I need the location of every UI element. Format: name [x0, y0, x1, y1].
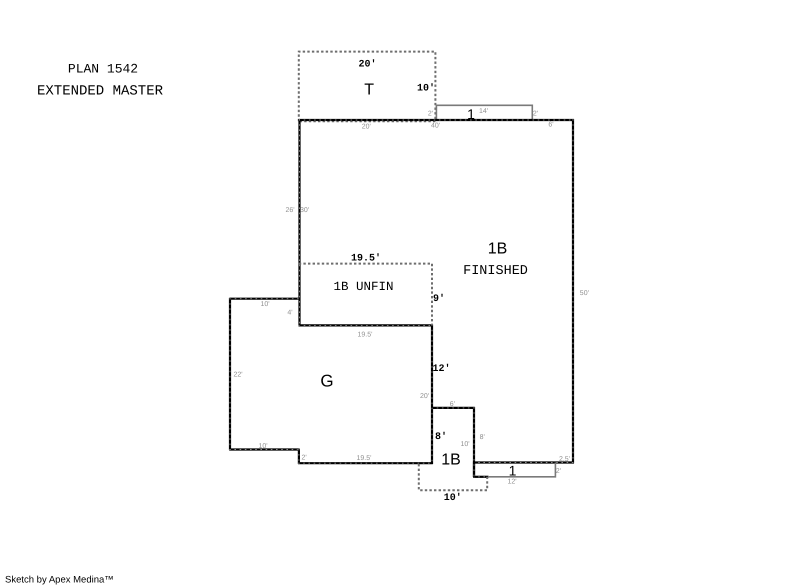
- svg-text:19.5': 19.5': [351, 253, 381, 265]
- svg-text:1: 1: [509, 462, 517, 478]
- svg-text:2': 2': [302, 455, 307, 462]
- svg-text:G: G: [320, 372, 333, 391]
- svg-text:40': 40': [431, 123, 440, 130]
- svg-text:30': 30': [300, 207, 309, 214]
- svg-text:6': 6': [450, 401, 455, 408]
- svg-text:10': 10': [460, 441, 469, 448]
- svg-text:4': 4': [287, 310, 292, 317]
- svg-text:20': 20': [358, 59, 376, 71]
- svg-text:10': 10': [444, 492, 462, 504]
- svg-text:2': 2': [556, 468, 561, 475]
- svg-text:PLAN 1542: PLAN 1542: [68, 62, 138, 77]
- svg-text:26': 26': [285, 207, 294, 214]
- svg-text:8': 8': [480, 434, 485, 441]
- svg-text:Sketch by Apex Medina™: Sketch by Apex Medina™: [5, 575, 114, 586]
- svg-text:12': 12': [507, 478, 516, 485]
- svg-text:12': 12': [433, 363, 451, 375]
- svg-text:19.5': 19.5': [358, 332, 373, 339]
- svg-text:1B: 1B: [441, 452, 461, 469]
- svg-text:FINISHED: FINISHED: [463, 264, 528, 279]
- svg-text:1B UNFIN: 1B UNFIN: [333, 280, 393, 294]
- svg-text:22': 22': [234, 372, 243, 379]
- svg-text:10': 10': [417, 83, 435, 95]
- svg-text:9': 9': [433, 293, 445, 305]
- svg-text:20': 20': [362, 124, 371, 131]
- svg-text:2': 2': [533, 111, 538, 118]
- svg-text:20': 20': [420, 393, 429, 400]
- svg-text:2': 2': [428, 111, 433, 118]
- svg-text:50': 50': [580, 290, 589, 297]
- svg-text:19.5': 19.5': [357, 455, 372, 462]
- svg-text:8': 8': [435, 431, 447, 443]
- svg-text:10': 10': [260, 301, 269, 308]
- svg-text:6': 6': [548, 122, 553, 129]
- svg-text:14': 14': [479, 108, 488, 115]
- svg-text:EXTENDED MASTER: EXTENDED MASTER: [37, 84, 164, 100]
- svg-text:1B: 1B: [488, 241, 508, 258]
- svg-text:10': 10': [258, 443, 267, 450]
- svg-text:T: T: [364, 82, 374, 99]
- svg-text:2.5': 2.5': [559, 456, 570, 463]
